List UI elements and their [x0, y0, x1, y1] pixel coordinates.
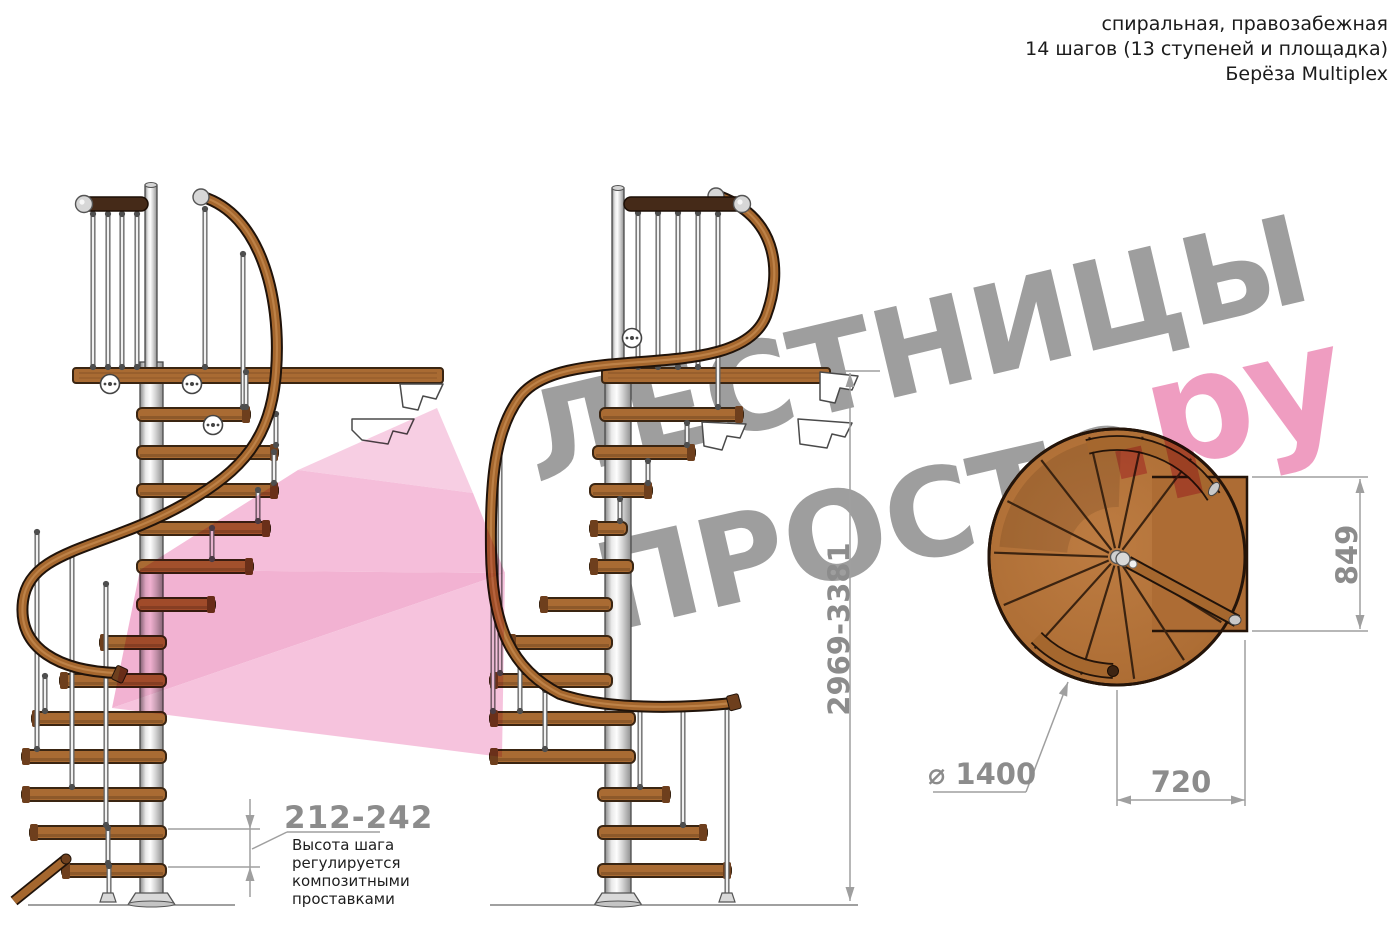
dim-landing-side-label: 849 [1330, 405, 1362, 705]
step-height-note: Высота шага регулируется композитными пр… [292, 836, 410, 908]
note-line: Высота шага [292, 836, 410, 854]
note-line: регулируется [292, 854, 410, 872]
note-line: проставками [292, 890, 410, 908]
title-block: спиральная, правозабежная 14 шагов (13 с… [1025, 12, 1388, 87]
left-elevation-view [14, 183, 443, 908]
title-line-type: спиральная, правозабежная [1025, 12, 1388, 37]
dim-step-height-label: 212-242 [284, 800, 433, 836]
dim-landing-depth-label: 720 [1106, 765, 1256, 799]
dim-diameter-label: ⌀ 1400 [926, 757, 1038, 791]
title-line-material: Берёза Multiplex [1025, 62, 1388, 87]
dim-total-height-label: 2969-3381 [822, 479, 854, 779]
front-elevation-view [490, 186, 858, 908]
note-line: композитными [292, 872, 410, 890]
drawing-page: ЛЕСТНИЦЫ ПРОСТО .ру спиральная, правозаб… [0, 0, 1400, 944]
title-line-steps: 14 шагов (13 ступеней и площадка) [1025, 37, 1388, 62]
